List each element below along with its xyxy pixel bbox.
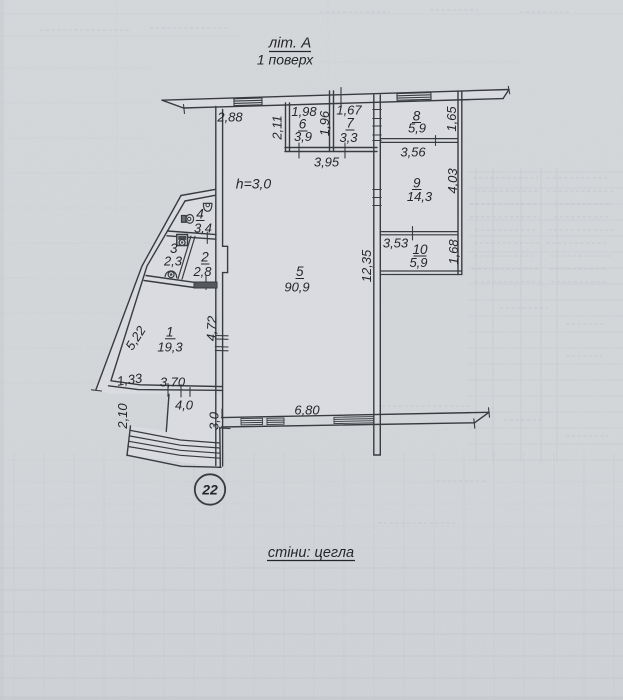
svg-text:3,3: 3,3 [339, 130, 358, 145]
svg-text:2: 2 [200, 250, 209, 265]
svg-text:літ. А: літ. А [268, 35, 311, 52]
svg-text:90,9: 90,9 [284, 280, 309, 295]
svg-text:3,9: 3,9 [294, 129, 312, 144]
svg-text:4,72: 4,72 [203, 315, 219, 342]
svg-text:22: 22 [201, 482, 218, 498]
svg-text:2,10: 2,10 [115, 403, 130, 430]
svg-text:4: 4 [196, 207, 204, 222]
svg-text:12,35: 12,35 [359, 249, 374, 282]
svg-text:1,65: 1,65 [444, 106, 459, 132]
svg-text:3,70: 3,70 [160, 375, 186, 390]
svg-text:5,9: 5,9 [409, 255, 427, 270]
svg-text:5: 5 [296, 264, 304, 279]
svg-text:6,80: 6,80 [294, 403, 320, 418]
svg-text:3,53: 3,53 [383, 236, 409, 251]
svg-text:2,88: 2,88 [216, 110, 243, 125]
svg-text:4,0: 4,0 [175, 398, 194, 413]
svg-text:1,96: 1,96 [317, 110, 332, 136]
svg-text:стіни: цегла: стіни: цегла [268, 545, 354, 561]
svg-text:3,56: 3,56 [400, 145, 426, 160]
svg-text:3,4: 3,4 [194, 221, 212, 236]
svg-text:7: 7 [346, 116, 354, 131]
svg-text:1,68: 1,68 [446, 239, 461, 265]
svg-text:3,0: 3,0 [207, 411, 222, 430]
svg-text:2,3: 2,3 [163, 254, 183, 269]
svg-text:1 поверх: 1 поверх [257, 52, 314, 68]
svg-text:3,95: 3,95 [314, 155, 340, 170]
svg-text:2,8: 2,8 [192, 264, 212, 279]
svg-text:2,11: 2,11 [270, 115, 285, 140]
svg-text:5,9: 5,9 [408, 121, 426, 136]
svg-text:19,3: 19,3 [157, 340, 183, 355]
svg-text:1: 1 [166, 325, 174, 340]
svg-text:4,03: 4,03 [445, 168, 460, 194]
svg-text:14,3: 14,3 [407, 189, 433, 204]
svg-text:h=3,0: h=3,0 [236, 176, 272, 192]
